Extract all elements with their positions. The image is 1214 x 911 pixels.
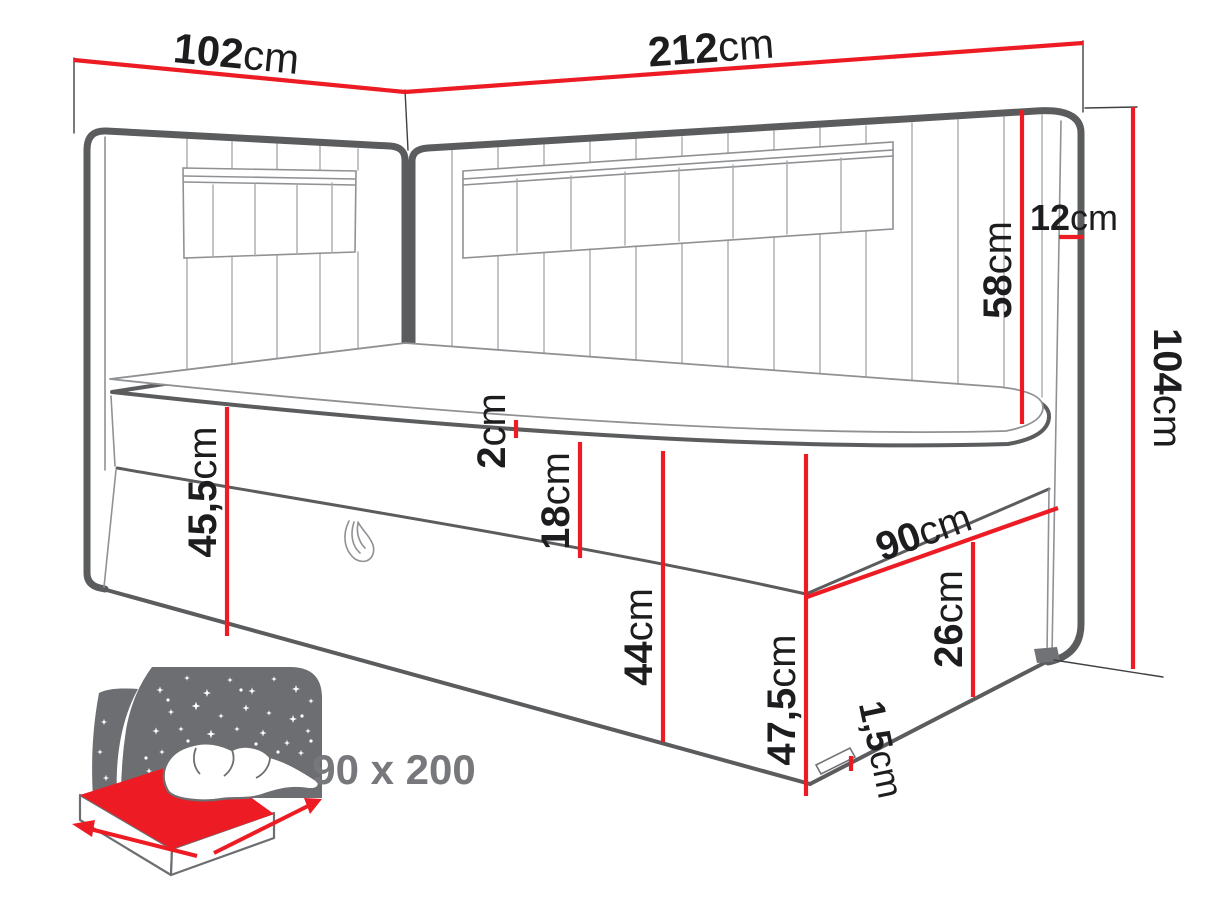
dim-foot-width-label: 90cm [870, 496, 977, 570]
dim-front-height-label: 44cm [617, 588, 661, 686]
dim-mattress-label: 18cm [534, 452, 578, 550]
box-right-back-edge [1047, 489, 1049, 656]
dim-side-width-label: 102cm [171, 24, 301, 83]
dim-floor-gap-label: 1,5cm [851, 697, 911, 801]
dim-side-height-label: 45,5cm [181, 426, 225, 557]
mattress-left-corner-edge [111, 396, 115, 466]
dim-box-height-label: 26cm [927, 570, 971, 668]
dim-headboard-above-label: 58cm [976, 221, 1020, 319]
dim-total-height-label: 104cm [1145, 328, 1189, 448]
mattress-size-label: 90 x 200 [312, 746, 476, 793]
storage-handle [345, 521, 374, 561]
box-left-corner-edge [104, 470, 116, 587]
extension-bottom-right [1054, 660, 1163, 677]
box-bottom-right-edge [810, 661, 1048, 784]
dim-headboard-thickness-label: 12cm [1030, 197, 1118, 238]
right-headboard-panel [463, 142, 893, 258]
dim-back-width-label: 212cm [646, 19, 775, 75]
extension-corner [405, 90, 408, 150]
mattress-topper-edge [110, 343, 1043, 432]
left-headboard-panel [183, 168, 356, 258]
dim-topper-label: 2cm [470, 393, 514, 469]
bed-dimension-diagram: 102cm 212cm 12cm 58cm 104cm 2cm 18cm 45,… [0, 0, 1214, 911]
extension-right-horizontal [1085, 107, 1137, 108]
dim-corner-height-label: 47,5cm [760, 634, 804, 765]
mattress-size-icon: 90 x 200 [72, 667, 476, 875]
diagram-canvas: 102cm 212cm 12cm 58cm 104cm 2cm 18cm 45,… [0, 0, 1214, 911]
